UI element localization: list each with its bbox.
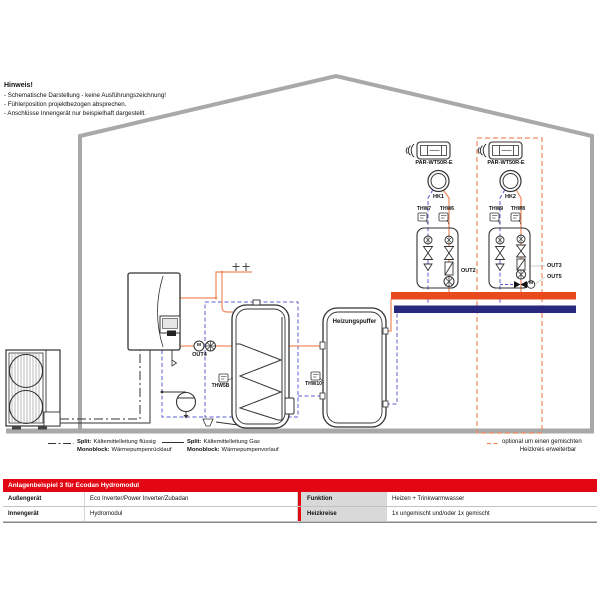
motor-label: M (196, 343, 203, 348)
optional-note-line2: Heizkreis erweiterbar (502, 447, 594, 453)
cell-outdoor-unit-label: Außengerät (3, 492, 85, 506)
remote-label-1: PAR-WT50R-E (407, 160, 461, 166)
hk2-thermostat (500, 171, 521, 192)
schematic-page: Hinweis! - Schematische Darstellung - ke… (0, 0, 600, 600)
out4-label: OUT4 (185, 352, 214, 358)
wireless-icon (478, 144, 486, 157)
sensor-label-thw8: THW8 (506, 206, 530, 212)
expansion-vessel (161, 391, 196, 419)
sensor-icon-thw9 (490, 213, 500, 224)
hk1-thermostat (428, 171, 449, 192)
valve-group-2 (489, 228, 545, 288)
sensor-icon-thw6 (439, 213, 449, 224)
flow-bar (391, 292, 576, 300)
return-bar (394, 306, 576, 314)
sensor-label-thw7: THW7 (412, 206, 436, 212)
legend-entry-1-split: Split:Kältemittelleitung flüssig (77, 439, 156, 445)
optional-note-line1: optional um einen gemischten (502, 439, 582, 445)
heater-flange (285, 398, 294, 414)
remote-controller-2 (478, 142, 522, 159)
indoor-unit (128, 273, 180, 366)
buffer-tank (320, 308, 388, 427)
sensor-label-thw9: THW9 (484, 206, 508, 212)
hinweis-line: - Fühlerposition projektbezogen absprech… (4, 101, 126, 108)
spec-table: Anlagenbeispiel 3 für Ecodan Hydromodul … (3, 479, 597, 523)
refrigerant-gas-line (60, 350, 150, 423)
out2-label: OUT2 (461, 268, 476, 274)
cell-outdoor-unit-value: Eco Inverter/Power Inverter/Zubadan (85, 492, 298, 506)
thw10-label: THW10 (300, 381, 327, 387)
table-header: Anlagenbeispiel 3 für Ecodan Hydromodul (3, 479, 597, 492)
remote-label-2: PAR-WT50R-E (479, 160, 533, 166)
legend-entry-2-split: Split:Kältemittelleitung Gas (187, 439, 260, 445)
sensor-icon-thw7 (418, 213, 428, 224)
pipe-junction-dot (215, 297, 218, 300)
pipe-junction-dot (221, 271, 224, 274)
dhw-tank (203, 300, 294, 428)
outdoor-unit (6, 350, 60, 430)
cell-indoor-unit-label: Innengerät (3, 507, 85, 521)
out3-label: OUT3 (547, 263, 562, 269)
table-row: Innengerät Hydromodul Heizkreise 1x unge… (3, 507, 597, 522)
sensor-icon-thw8 (511, 213, 521, 224)
drain-funnel-icon (203, 419, 213, 426)
hk1-label: HK1 (424, 194, 453, 200)
legend-entry-2-monoblock: Monoblock:Wärmepumpenvorlauf (187, 447, 279, 453)
wireless-icon (406, 144, 414, 157)
cell-function-value: Heizen + Trinkwarmwasser (387, 492, 597, 506)
refrigerant-liquid-line (60, 350, 140, 419)
motor-label: M (528, 281, 535, 286)
hinweis-title: Hinweis! (4, 82, 33, 89)
safety-valve-icon (172, 360, 177, 366)
air-vent-icon (233, 263, 250, 271)
thw5b-label: THW5B (207, 383, 234, 389)
hinweis-line: - Schematische Darstellung - keine Ausfü… (4, 92, 166, 99)
hinweis-line: - Anschlüsse Innengerät nur beispielhaft… (4, 110, 146, 117)
cell-indoor-unit-value: Hydromodul (85, 507, 298, 521)
system-diagram (0, 0, 600, 476)
valve-group-1 (417, 228, 458, 288)
out5-label: OUT5 (547, 274, 562, 280)
cell-circuits-value: 1x ungemischt und/oder 1x gemischt (387, 507, 597, 521)
table-row: Außengerät Eco Inverter/Power Inverter/Z… (3, 492, 597, 507)
sensor-icon-thw5b (219, 374, 233, 382)
cell-circuits-label: Heizkreise (298, 507, 387, 521)
buffer-tank-label: Heizungspuffer (327, 319, 382, 325)
hk2-label: HK2 (496, 194, 525, 200)
legend-entry-1-monoblock: Monoblock:Wärmepumpenrücklauf (77, 447, 171, 453)
remote-controller-1 (406, 142, 450, 159)
sensor-label-thw6: THW6 (435, 206, 459, 212)
cell-function-label: Funktion (298, 492, 387, 506)
